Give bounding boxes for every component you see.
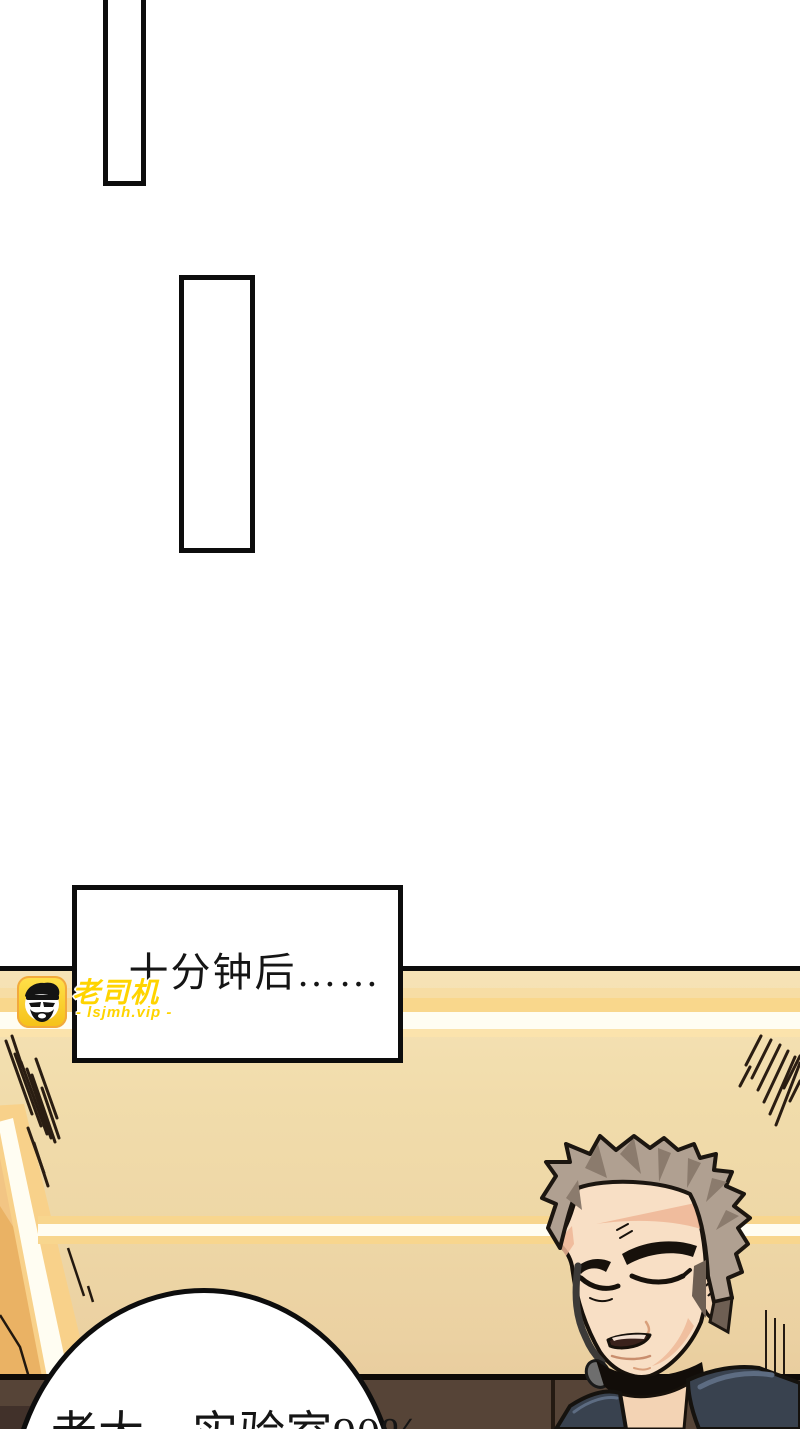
panel-frame-top [103, 0, 146, 186]
speed-lines-right [740, 1036, 800, 1125]
watermark-site-text: - lsjmh.vip - [76, 1004, 172, 1021]
watermark: 老司机 - lsjmh.vip - [0, 968, 230, 1038]
driver-face-icon [17, 976, 67, 1028]
ceiling-seams [68, 1248, 93, 1302]
dialogue-text: 老大，实验室90% [51, 1397, 381, 1429]
panel-frame-middle [179, 275, 255, 553]
manga-page: 老大，实验室90% 十分钟后…… 老司机 - lsjmh.vip - [0, 0, 800, 1429]
